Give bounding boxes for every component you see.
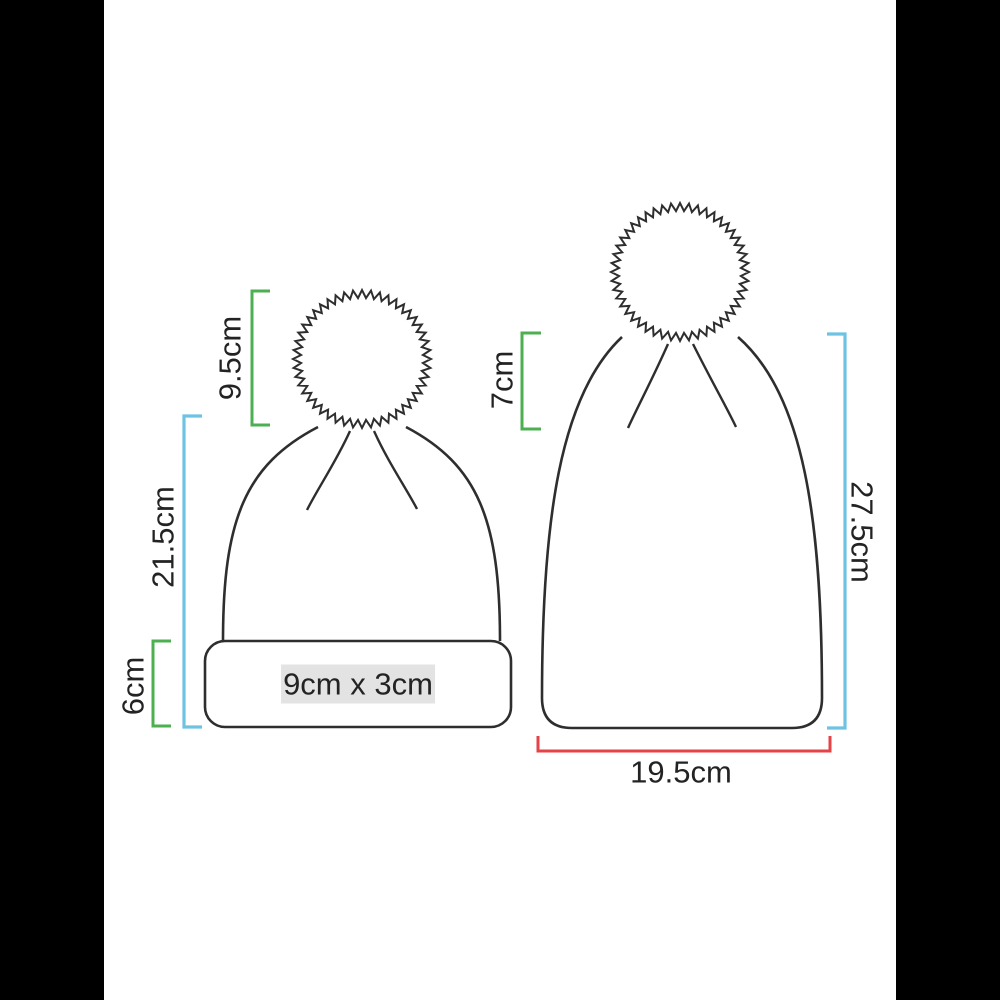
right-beanie-pompom	[611, 203, 749, 341]
right-beanie-gather-line-right	[693, 344, 736, 427]
left-cuff-height-bracket	[153, 641, 171, 726]
left-pom-height-bracket	[252, 291, 270, 425]
left-beanie-body-right-edge	[406, 427, 500, 641]
left-beanie-gather-line-left	[307, 431, 350, 510]
left-body-height-label: 21.5cm	[148, 486, 179, 588]
left-pom-height-label: 9.5cm	[215, 316, 246, 400]
left-body-height-bracket	[184, 416, 202, 727]
beanie-size-diagram: 9.5cm 21.5cm 6cm 9cm x 3cm 7cm 27.5cm 19…	[0, 0, 1000, 1000]
left-beanie-body-left-edge	[223, 427, 318, 641]
right-beanie-gather-line-left	[628, 344, 668, 428]
right-beanie-body-outline	[542, 337, 822, 728]
left-beanie-pompom	[293, 290, 431, 428]
left-cuff-print-area-label: 9cm x 3cm	[281, 665, 435, 704]
right-width-bracket	[538, 736, 830, 751]
right-body-height-label: 27.5cm	[847, 481, 878, 583]
left-beanie-gather-line-right	[374, 431, 417, 509]
left-cuff-height-label: 6cm	[118, 657, 149, 716]
right-body-height-bracket	[827, 334, 845, 728]
right-width-label: 19.5cm	[630, 757, 732, 788]
right-crown-height-label: 7cm	[487, 351, 518, 410]
right-crown-height-bracket	[522, 333, 541, 429]
